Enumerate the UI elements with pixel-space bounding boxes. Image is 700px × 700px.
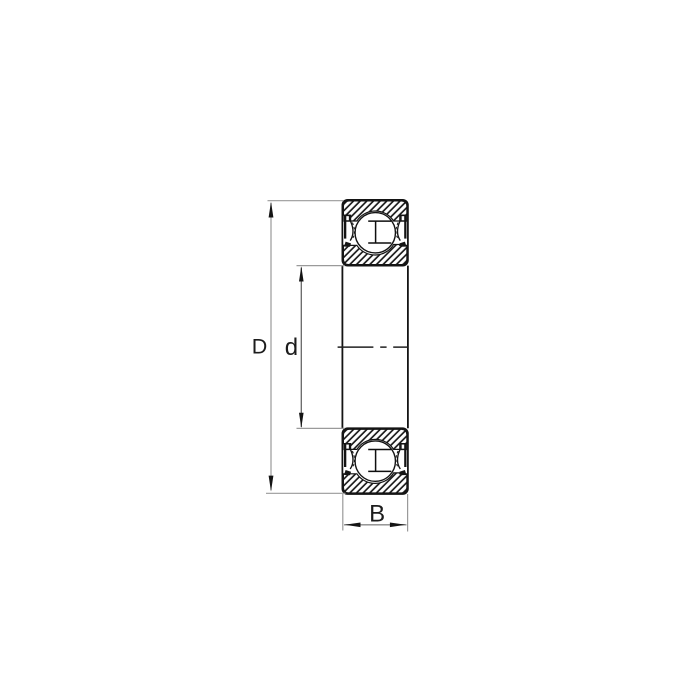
svg-text:B: B (369, 500, 385, 527)
svg-text:d: d (285, 334, 298, 361)
svg-text:D: D (252, 335, 268, 359)
